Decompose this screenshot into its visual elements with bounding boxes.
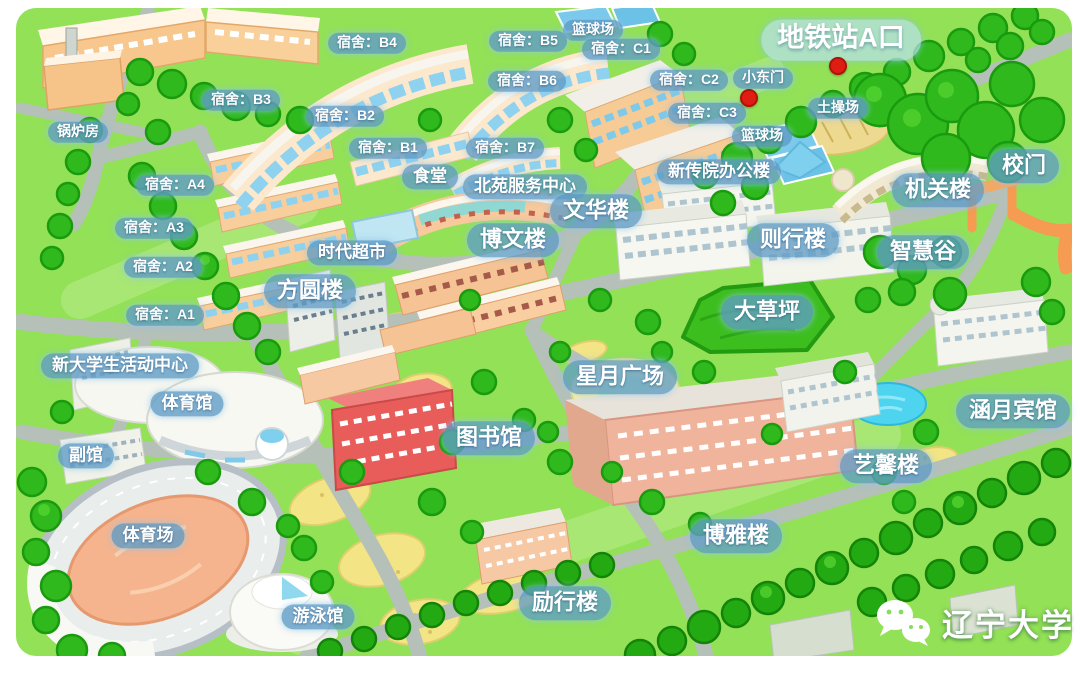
map-label-dorm-c3: 宿舍：C3 [668,103,746,124]
map-label-dorm-a4: 宿舍：A4 [136,175,214,196]
map-label-dorm-a1: 宿舍：A1 [126,305,204,326]
wechat-icon [872,596,934,648]
map-label-gymnasium: 体育馆 [151,391,224,416]
map-label-stadium: 体育场 [112,523,185,548]
map-label-fangyuan-building: 方圆楼 [264,274,356,308]
map-label-zexing-building: 则行楼 [747,223,839,257]
map-label-boiler-house: 锅炉房 [48,122,108,143]
map-labels-layer: 地铁站A口小东门土操场篮球场篮球场宿舍：B4宿舍：B5宿舍：C1宿舍：C2宿舍：… [0,0,1080,678]
map-label-basketball-court-top: 篮球场 [563,20,623,41]
map-label-small-east-gate: 小东门 [733,68,793,89]
map-label-basketball-court-east: 篮球场 [732,126,792,147]
map-label-dorm-b6: 宿舍：B6 [488,71,566,92]
map-label-library: 图书馆 [443,421,535,455]
map-label-annex-hall: 副馆 [58,443,114,468]
map-label-dorm-c1: 宿舍：C1 [582,39,660,60]
map-label-dorm-a3: 宿舍：A3 [115,218,193,239]
map-label-dorm-b4: 宿舍：B4 [328,33,406,54]
map-label-shidai-supermarket: 时代超市 [307,240,397,265]
map-label-school-gate: 校门 [989,149,1059,183]
map-label-boya-building: 博雅楼 [690,519,782,553]
map-label-yixin-building: 艺馨楼 [840,449,932,483]
map-label-hanyue-hotel: 涵月宾馆 [956,394,1070,428]
map-label-dorm-a2: 宿舍：A2 [124,257,202,278]
map-label-media-school-office: 新传院办公楼 [657,159,781,184]
metro-exit-marker [829,57,847,75]
map-label-dorm-b3: 宿舍：B3 [202,90,280,111]
map-label-swimming-pool: 游泳馆 [282,604,355,629]
map-label-dorm-b7: 宿舍：B7 [466,138,544,159]
campus-map: 地铁站A口小东门土操场篮球场篮球场宿舍：B4宿舍：B5宿舍：C1宿舍：C2宿舍：… [0,0,1080,678]
map-label-wenhua-building: 文华楼 [550,194,642,228]
map-label-dirt-field: 土操场 [808,98,868,119]
map-label-bowen-building: 博文楼 [467,223,559,257]
map-label-new-student-activity-center: 新大学生活动中心 [41,353,199,378]
map-label-dorm-b1: 宿舍：B1 [349,138,427,159]
map-label-canteen: 食堂 [402,164,458,189]
map-label-dorm-b5: 宿舍：B5 [489,31,567,52]
map-label-wisdom-valley: 智慧谷 [877,235,969,269]
small-east-gate-marker [740,89,758,107]
watermark: 辽宁大学 [872,596,1074,648]
map-label-dorm-c2: 宿舍：C2 [650,70,728,91]
map-label-lixing-building: 励行楼 [519,586,611,620]
map-label-great-lawn: 大草坪 [721,295,813,329]
map-label-xingyue-plaza: 星月广场 [563,360,677,394]
map-label-metro-exit-a: 地铁站A口 [761,20,921,61]
map-label-dorm-b2: 宿舍：B2 [306,106,384,127]
map-label-admin-building: 机关楼 [892,173,984,207]
watermark-text: 辽宁大学 [942,600,1074,645]
